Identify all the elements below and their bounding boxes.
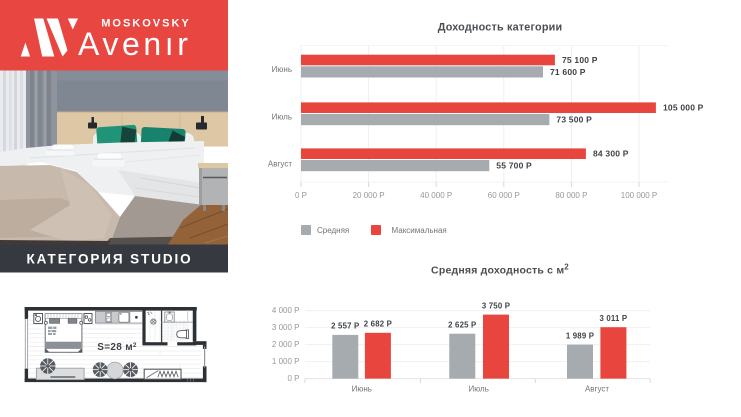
svg-text:40 000 Р: 40 000 Р — [420, 191, 452, 200]
svg-text:Июнь: Июнь — [272, 65, 292, 74]
svg-text:2 625 Р: 2 625 Р — [448, 321, 476, 330]
svg-text:2 557 Р: 2 557 Р — [331, 322, 359, 331]
svg-text:3 000 Р: 3 000 Р — [272, 323, 300, 332]
svg-text:Август: Август — [268, 159, 292, 168]
svg-text:1 989 Р: 1 989 Р — [566, 332, 594, 341]
svg-text:Июль: Июль — [272, 112, 292, 121]
svg-text:3 750 Р: 3 750 Р — [482, 302, 510, 311]
svg-text:0 Р: 0 Р — [287, 374, 299, 383]
svg-text:Средняя: Средняя — [317, 226, 349, 235]
svg-text:2 000 Р: 2 000 Р — [272, 340, 300, 349]
svg-text:1 000 Р: 1 000 Р — [272, 357, 300, 366]
svg-text:84 300 Р: 84 300 Р — [593, 149, 629, 159]
svg-text:60 000 Р: 60 000 Р — [488, 191, 520, 200]
svg-text:105 000 Р: 105 000 Р — [663, 103, 704, 113]
svg-text:Максимальная: Максимальная — [392, 226, 447, 235]
svg-text:73 500 Р: 73 500 Р — [556, 115, 592, 125]
svg-text:2 682 Р: 2 682 Р — [364, 320, 392, 329]
svg-text:71 600 Р: 71 600 Р — [550, 67, 586, 77]
svg-text:4 000 Р: 4 000 Р — [272, 306, 300, 315]
svg-text:Avenır: Avenır — [78, 26, 192, 62]
svg-text:S=28 м2: S=28 м2 — [97, 342, 137, 353]
svg-text:Август: Август — [585, 385, 609, 394]
svg-text:Средняя доходность с м2: Средняя доходность с м2 — [431, 263, 569, 277]
svg-text:0 Р: 0 Р — [295, 191, 307, 200]
svg-text:75 100 Р: 75 100 Р — [562, 55, 598, 65]
svg-text:55 700 Р: 55 700 Р — [496, 161, 532, 171]
svg-text:КАТЕГОРИЯ STUDIO: КАТЕГОРИЯ STUDIO — [26, 252, 192, 267]
svg-text:100 000 Р: 100 000 Р — [621, 191, 657, 200]
svg-text:Июль: Июль — [468, 385, 488, 394]
svg-text:20 000 Р: 20 000 Р — [353, 191, 385, 200]
svg-text:Доходность категории: Доходность категории — [438, 22, 563, 34]
svg-text:3 011 Р: 3 011 Р — [599, 314, 627, 323]
svg-text:Июнь: Июнь — [352, 385, 372, 394]
svg-text:80 000 Р: 80 000 Р — [555, 191, 587, 200]
